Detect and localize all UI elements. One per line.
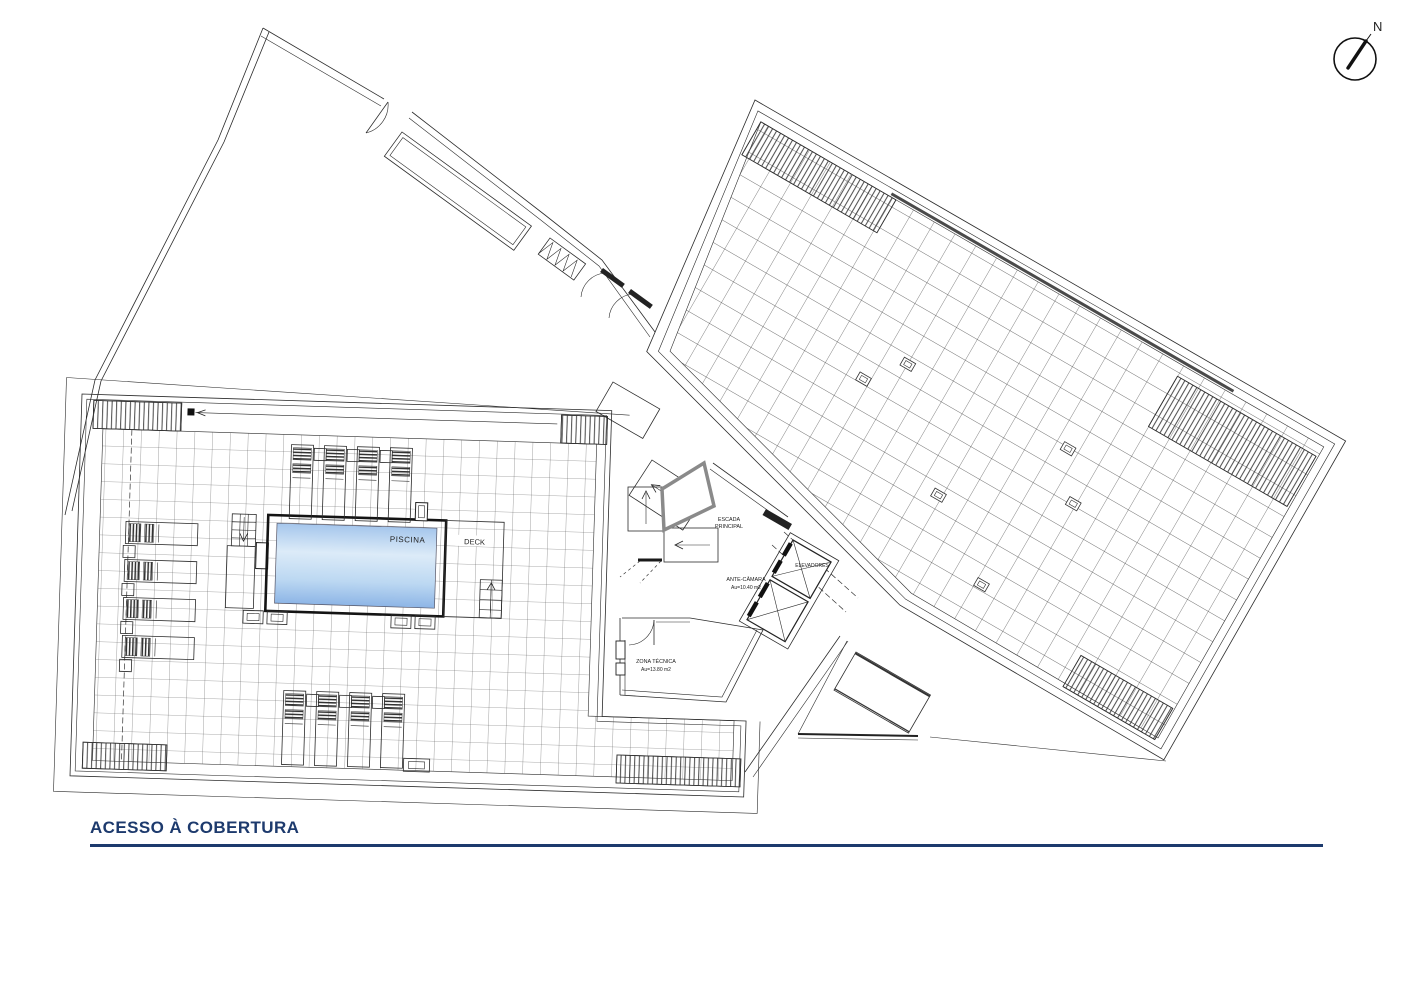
external-stair	[834, 652, 930, 733]
north-label: N	[1373, 19, 1382, 34]
main-stair-core: ESCADA PRINCIPAL	[620, 460, 792, 583]
sheet-title: ACESSO À COBERTURA	[90, 818, 1324, 838]
floor-plan-drawing: PISCINA DECK	[0, 0, 1414, 1000]
insulation-hatch	[538, 238, 585, 280]
door-arc	[366, 102, 388, 133]
floor-plan-sheet: PISCINA DECK	[0, 0, 1414, 1000]
compass-needle	[1348, 41, 1366, 68]
roof-corridor	[384, 132, 531, 250]
title-underline	[90, 844, 1323, 847]
ante-chamber-area: Au=10.40 m2	[731, 585, 761, 591]
tiled-roof-building	[572, 100, 1348, 760]
technical-zone-room: ZONA TÉCNICA Au=13.80 m2	[616, 618, 763, 702]
technical-zone-label: ZONA TÉCNICA	[636, 658, 676, 665]
sheet-title-block: ACESSO À COBERTURA	[90, 818, 1324, 838]
elevators-label: ELEVADORES	[795, 563, 829, 569]
stair-landing	[662, 463, 714, 530]
technical-zone-area: Au=13.80 m2	[641, 667, 671, 673]
deck-label: DECK	[464, 537, 485, 547]
ante-chamber-label: ANTE-CÂMARA	[726, 576, 766, 583]
door-arc	[629, 620, 654, 645]
pool-label: PISCINA	[390, 535, 426, 545]
pool-terrace: PISCINA DECK	[54, 378, 771, 814]
door-arc	[609, 289, 653, 318]
north-arrow: N	[1334, 19, 1382, 80]
main-stair-label: PRINCIPAL	[715, 524, 743, 530]
pool-shower	[415, 503, 428, 521]
main-stair-label: ESCADA	[718, 517, 741, 523]
